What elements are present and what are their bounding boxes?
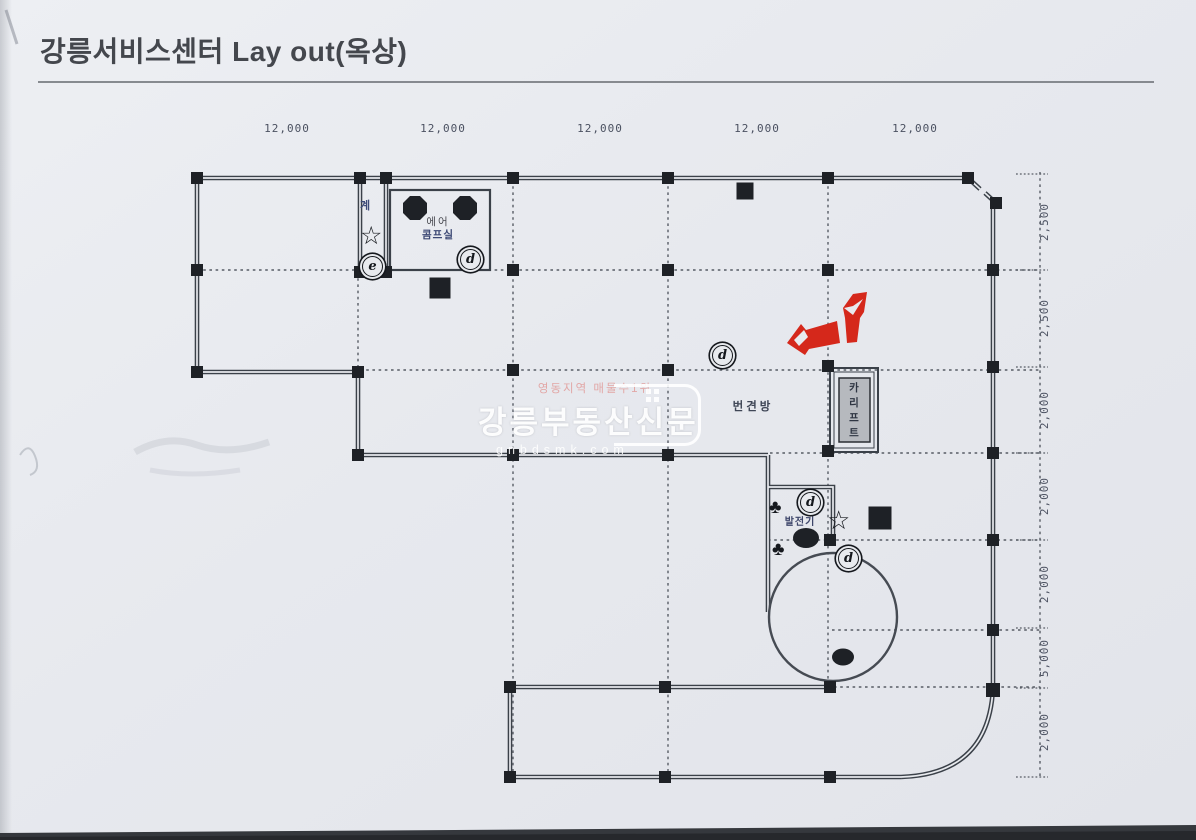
scanned-page: { "document": { "title": "강릉서비스센터 Lay ou… <box>0 0 1196 840</box>
club-icon: ♣ <box>769 498 781 517</box>
badge-e: e <box>362 256 383 277</box>
scan-artifact-bottom-band <box>0 825 1196 840</box>
scan-artifact-scribbles <box>6 10 269 475</box>
tank-circle <box>769 553 897 681</box>
red-arrow-icon <box>787 292 867 355</box>
black-square-marker <box>430 183 892 530</box>
badge-d-3: d <box>800 492 821 513</box>
club-icon: ♣ <box>772 540 784 559</box>
room-label-air-line1: 에어 <box>408 216 468 229</box>
star-icon: ☆ <box>827 507 850 533</box>
room-label-stairs: 계 <box>360 200 370 213</box>
badge-d-1: d <box>460 249 481 270</box>
generator-ellipse <box>793 528 819 548</box>
floor-plan <box>0 0 1196 840</box>
badge-d-2: d <box>712 345 733 366</box>
tank-dot <box>832 649 854 666</box>
walls-inner <box>197 178 997 777</box>
room-label-generator: 발전기 <box>780 516 820 529</box>
star-icon: ☆ <box>360 224 382 249</box>
column-markers <box>191 172 1002 783</box>
room-label-middle: 번견방 <box>722 401 784 414</box>
badge-d-4: d <box>838 548 859 569</box>
room-label-air-line2: 콤프실 <box>408 229 468 242</box>
room-label-car-lift: 카 리 프 트 <box>840 381 868 441</box>
